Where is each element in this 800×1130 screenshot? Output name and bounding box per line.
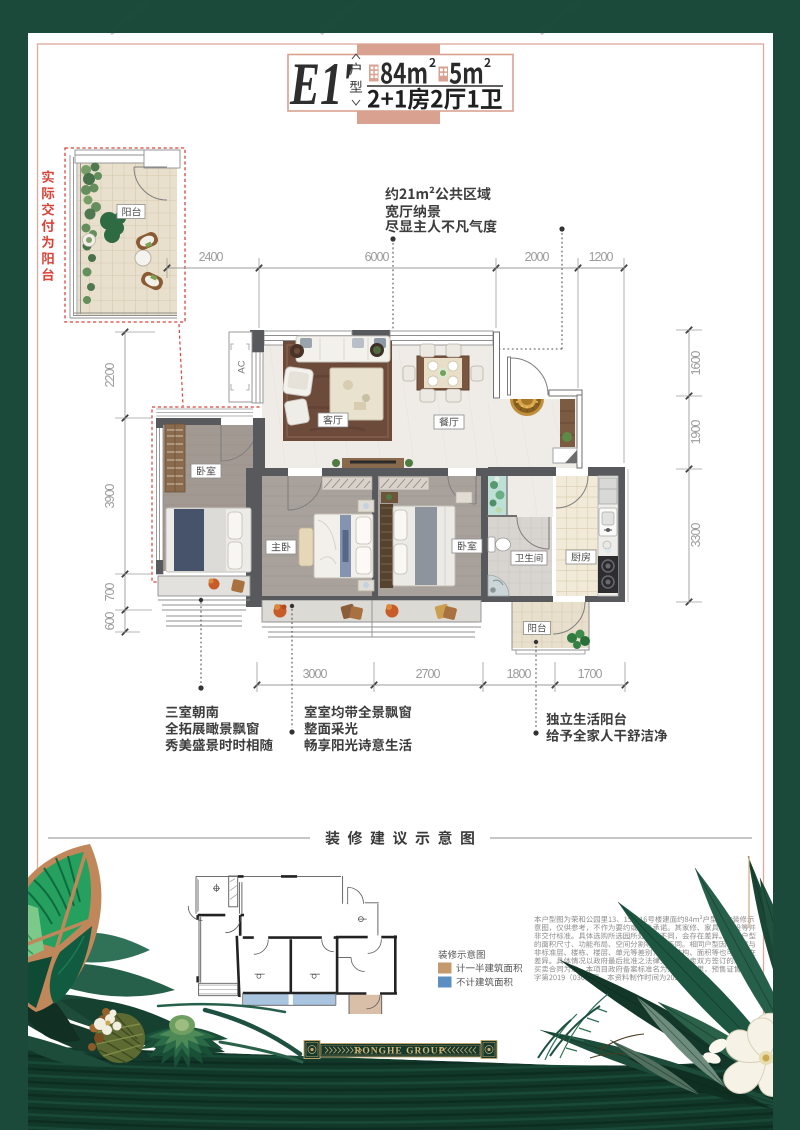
svg-text:RONGHE GROUP: RONGHE GROUP <box>355 1047 446 1057</box>
svg-text:E1′: E1′ <box>289 52 355 118</box>
svg-text:6000: 6000 <box>365 250 390 264</box>
svg-text:1900: 1900 <box>689 420 703 445</box>
svg-text:700: 700 <box>103 583 117 602</box>
svg-text:1700: 1700 <box>578 667 603 681</box>
svg-text:1200: 1200 <box>589 250 614 264</box>
svg-text:600: 600 <box>103 612 117 631</box>
svg-text:2000: 2000 <box>525 250 550 264</box>
svg-text:3900: 3900 <box>103 484 117 509</box>
svg-text:2200: 2200 <box>103 363 117 388</box>
svg-text:1600: 1600 <box>689 351 703 376</box>
svg-text:2400: 2400 <box>199 250 224 264</box>
svg-text:1800: 1800 <box>507 667 532 681</box>
svg-text:3300: 3300 <box>689 523 703 548</box>
svg-text:3000: 3000 <box>303 667 328 681</box>
svg-text:2700: 2700 <box>416 667 441 681</box>
svg-text:AC: AC <box>237 360 248 373</box>
